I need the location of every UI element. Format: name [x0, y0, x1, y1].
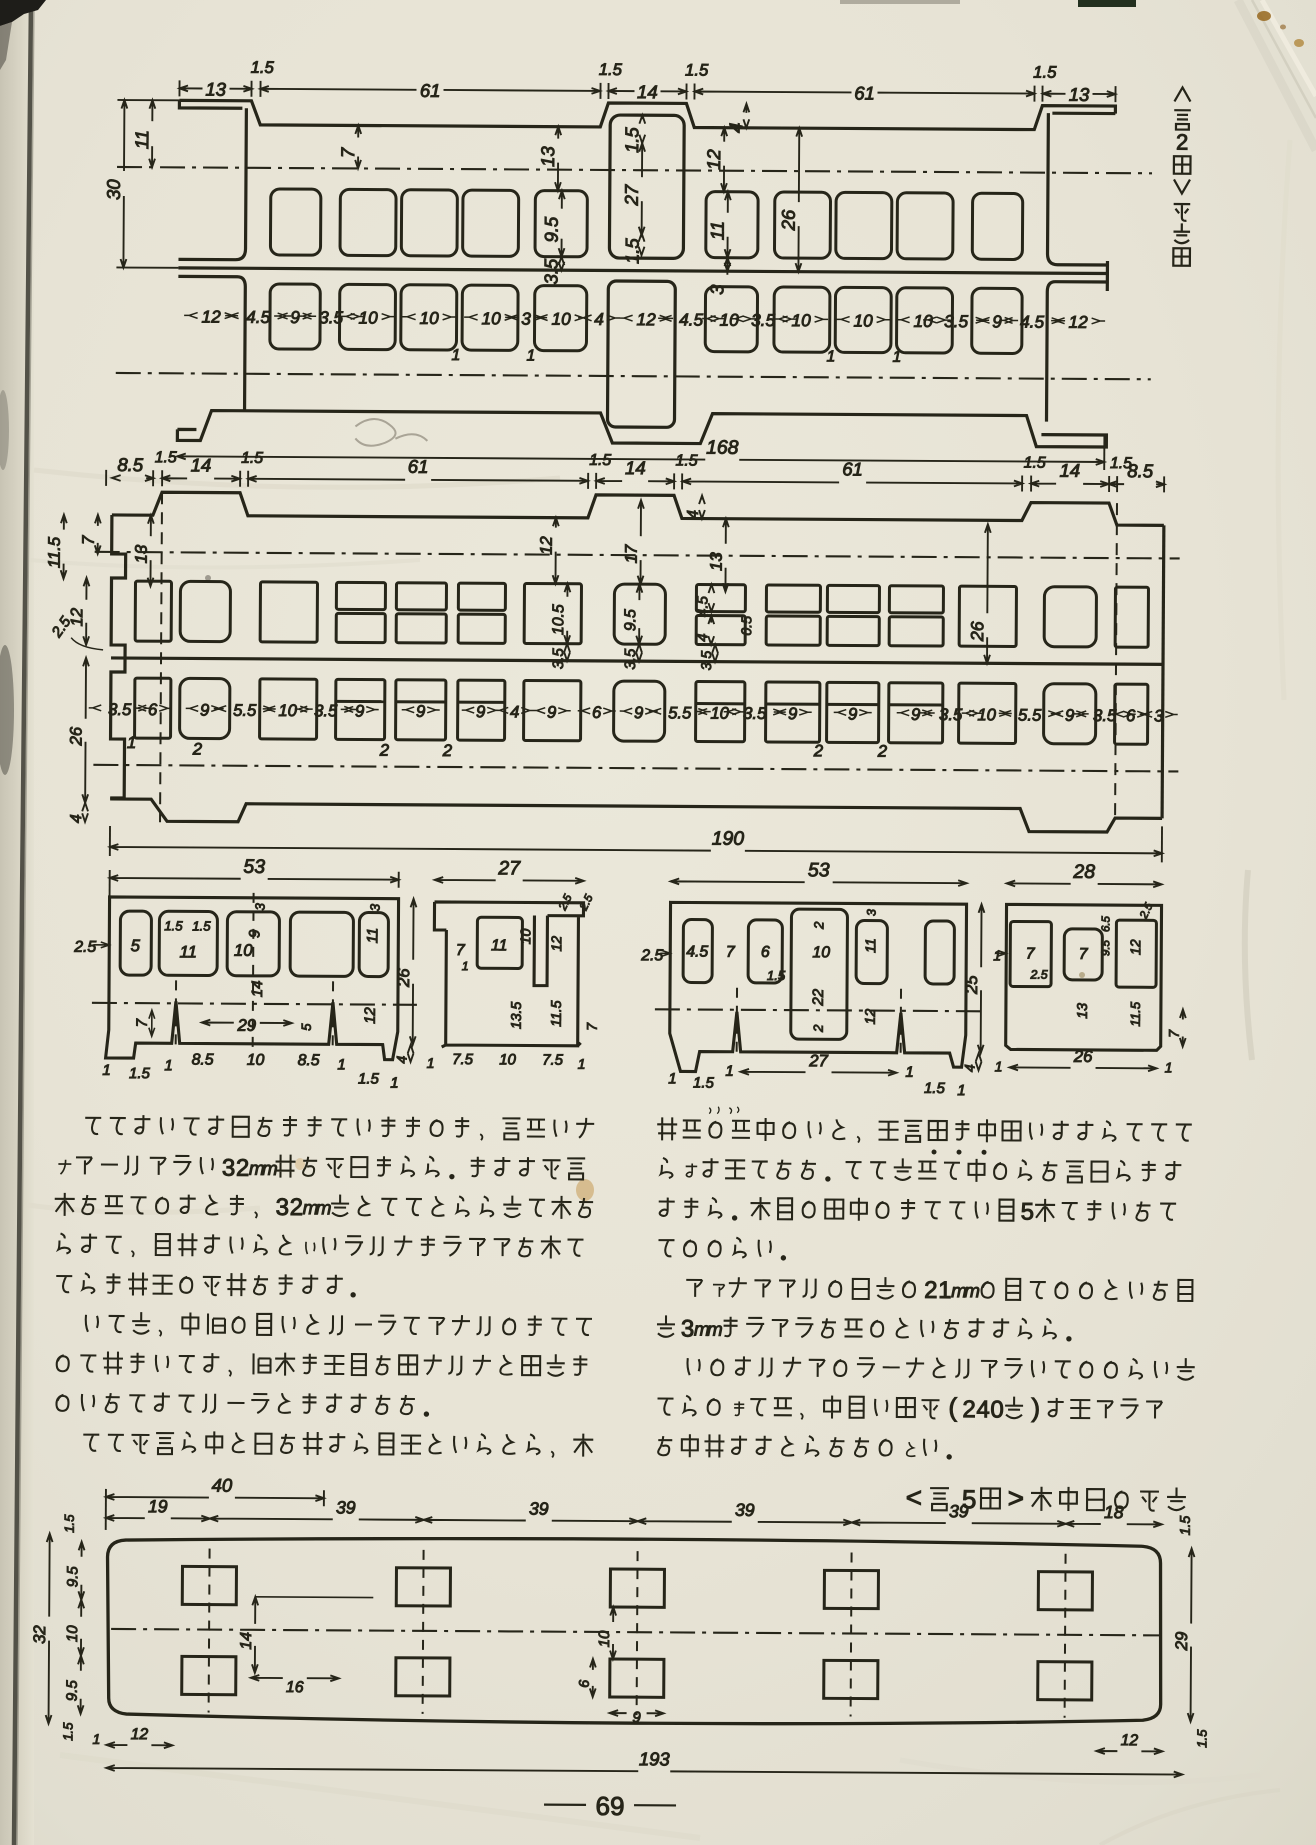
svg-text:29: 29 [236, 1016, 256, 1035]
svg-text:2: 2 [811, 1024, 826, 1033]
svg-text:10: 10 [419, 308, 439, 328]
svg-text:25: 25 [962, 975, 981, 995]
svg-text:10: 10 [481, 308, 501, 328]
svg-text:3.5: 3.5 [743, 704, 767, 723]
svg-text:3.5: 3.5 [622, 648, 639, 670]
svg-text:7: 7 [1079, 946, 1089, 963]
svg-text:4.5: 4.5 [686, 943, 708, 960]
svg-text:m: m [316, 1198, 332, 1219]
svg-text:12: 12 [131, 1726, 149, 1743]
svg-text:4: 4 [510, 702, 519, 721]
svg-text:6.5: 6.5 [1100, 915, 1112, 932]
svg-text:9.5: 9.5 [622, 609, 639, 631]
svg-text:1: 1 [995, 1058, 1003, 1074]
svg-text:3: 3 [1154, 706, 1164, 725]
svg-text:4.5: 4.5 [694, 595, 711, 617]
svg-text:1.5: 1.5 [155, 449, 177, 466]
svg-text:3: 3 [252, 902, 267, 910]
svg-text:3.5: 3.5 [319, 307, 343, 327]
svg-text:39: 39 [529, 1499, 549, 1519]
svg-text:12: 12 [548, 936, 564, 952]
svg-text:1: 1 [427, 1055, 435, 1071]
svg-text:13: 13 [132, 544, 151, 563]
svg-text:2: 2 [1176, 129, 1188, 154]
svg-text:1: 1 [826, 348, 835, 365]
svg-text:10: 10 [358, 307, 378, 327]
svg-text:<: < [906, 1482, 923, 1513]
svg-text:>: > [1008, 1482, 1025, 1513]
svg-text:27: 27 [497, 857, 521, 879]
svg-text:14: 14 [249, 980, 266, 997]
svg-text:9: 9 [632, 1709, 641, 1726]
svg-text:39: 39 [949, 1501, 969, 1521]
svg-text:4: 4 [962, 1064, 978, 1072]
svg-text:2: 2 [962, 1396, 976, 1423]
svg-text:61: 61 [842, 458, 863, 479]
svg-text:39: 39 [336, 1497, 356, 1517]
svg-text:7: 7 [726, 944, 736, 961]
svg-text:1.5: 1.5 [241, 450, 263, 467]
svg-text:1.5: 1.5 [60, 1722, 75, 1741]
svg-text:12: 12 [703, 149, 724, 170]
svg-text:4: 4 [394, 1056, 410, 1064]
svg-text:2: 2 [379, 741, 390, 760]
svg-text:8.5: 8.5 [117, 454, 144, 475]
svg-text:11.5: 11.5 [548, 1000, 564, 1027]
svg-text:11: 11 [491, 937, 508, 954]
svg-text:1: 1 [1165, 1059, 1173, 1075]
svg-text:1.5: 1.5 [693, 1075, 715, 1092]
svg-text:3.5: 3.5 [751, 310, 775, 330]
svg-text:11: 11 [131, 130, 152, 149]
svg-text:1.5: 1.5 [358, 1070, 380, 1087]
svg-text:14: 14 [1059, 460, 1080, 481]
svg-text:40: 40 [212, 1475, 233, 1496]
svg-text:22: 22 [810, 988, 827, 1006]
svg-text:16: 16 [286, 1679, 304, 1696]
svg-text:5.5: 5.5 [668, 703, 692, 722]
svg-text:9: 9 [788, 704, 797, 723]
svg-text:1: 1 [127, 733, 136, 752]
svg-text:32: 32 [30, 1624, 49, 1643]
svg-text:9: 9 [290, 307, 300, 327]
svg-text:1: 1 [526, 347, 535, 364]
svg-text:1: 1 [938, 1277, 952, 1304]
svg-text:1: 1 [578, 1056, 586, 1072]
svg-text:6: 6 [576, 1680, 592, 1688]
svg-text:1.5: 1.5 [589, 452, 611, 469]
svg-text:m: m [262, 1159, 278, 1180]
svg-text:1.5: 1.5 [1110, 455, 1132, 472]
svg-text:9: 9 [1065, 706, 1074, 725]
svg-text:3.5: 3.5 [314, 701, 338, 720]
svg-text:7: 7 [456, 942, 466, 959]
svg-text:39: 39 [735, 1500, 755, 1520]
svg-text:11: 11 [180, 942, 197, 961]
svg-text:13: 13 [1074, 1003, 1090, 1019]
svg-text:7: 7 [584, 1022, 600, 1031]
svg-text:69: 69 [595, 1791, 624, 1821]
svg-text:4: 4 [725, 123, 746, 133]
svg-text:53: 53 [808, 859, 830, 881]
svg-text:5: 5 [1021, 1199, 1035, 1226]
svg-text:4.5: 4.5 [246, 307, 270, 327]
svg-text:9: 9 [911, 705, 920, 724]
svg-text:7: 7 [1026, 946, 1036, 963]
svg-text:5.5: 5.5 [233, 701, 257, 720]
svg-text:2.5: 2.5 [1030, 968, 1048, 982]
svg-text:3.5: 3.5 [108, 700, 132, 719]
svg-text:1.5: 1.5 [1194, 1729, 1209, 1748]
svg-text:12: 12 [1121, 1732, 1139, 1749]
svg-text:1.5: 1.5 [767, 968, 786, 983]
svg-text:10.5: 10.5 [550, 604, 567, 635]
svg-text:4: 4 [976, 1396, 990, 1423]
svg-text:11: 11 [862, 938, 878, 953]
svg-text:3.5: 3.5 [550, 648, 567, 670]
svg-text:12: 12 [537, 536, 556, 555]
svg-text:193: 193 [639, 1748, 671, 1769]
svg-text:(: ( [948, 1392, 957, 1422]
svg-text:19: 19 [148, 1496, 168, 1516]
svg-text:28: 28 [1072, 861, 1095, 883]
svg-text:18: 18 [1104, 1502, 1124, 1522]
svg-text:3.5: 3.5 [939, 705, 963, 724]
svg-text:12: 12 [362, 1006, 379, 1023]
svg-text:3: 3 [521, 308, 531, 328]
svg-text:2: 2 [924, 1277, 938, 1304]
svg-text:4: 4 [594, 309, 604, 329]
svg-text:10: 10 [791, 310, 811, 330]
svg-text:7: 7 [134, 1018, 151, 1027]
svg-text:6: 6 [761, 944, 770, 961]
svg-text:0.5: 0.5 [738, 616, 754, 636]
svg-text:14: 14 [191, 454, 212, 475]
svg-text:1: 1 [102, 1062, 110, 1079]
svg-text:7: 7 [337, 147, 358, 158]
svg-text:10: 10 [64, 1625, 81, 1642]
svg-text:1.5: 1.5 [621, 126, 642, 153]
svg-text:1: 1 [337, 1056, 345, 1073]
svg-text:3.5: 3.5 [540, 258, 561, 285]
svg-text:2: 2 [442, 741, 453, 760]
svg-text:9.5: 9.5 [64, 1566, 81, 1588]
svg-text:1: 1 [92, 1731, 100, 1747]
svg-text:2: 2 [290, 1194, 304, 1221]
svg-text:4.5: 4.5 [679, 309, 703, 329]
svg-text:0: 0 [990, 1396, 1004, 1423]
svg-text:): ) [1031, 1393, 1040, 1423]
svg-text:10: 10 [499, 1051, 516, 1068]
svg-text:13: 13 [707, 552, 726, 571]
svg-text:27: 27 [808, 1051, 828, 1070]
svg-text:11.5: 11.5 [45, 536, 64, 568]
svg-text:13: 13 [537, 146, 558, 167]
svg-text:2: 2 [813, 741, 824, 760]
svg-text:14: 14 [238, 1632, 255, 1650]
svg-text:9: 9 [547, 703, 556, 722]
svg-text:10: 10 [596, 1630, 613, 1647]
svg-text:3: 3 [681, 1315, 695, 1342]
svg-text:26: 26 [967, 621, 987, 642]
svg-text:4.5: 4.5 [1020, 311, 1044, 331]
svg-text:5: 5 [131, 936, 141, 955]
svg-text:12: 12 [1127, 939, 1143, 955]
svg-text:m: m [964, 1281, 980, 1302]
svg-text:1: 1 [451, 347, 460, 364]
svg-text:29: 29 [1172, 1632, 1191, 1652]
svg-text:11: 11 [707, 221, 728, 240]
svg-text:61: 61 [854, 82, 875, 103]
svg-text:7.5: 7.5 [542, 1052, 564, 1069]
svg-text:1: 1 [905, 1064, 913, 1081]
svg-text:3: 3 [864, 909, 878, 916]
svg-text:1.5: 1.5 [685, 60, 709, 79]
svg-text:10: 10 [234, 941, 253, 960]
svg-text:7.5: 7.5 [452, 1051, 474, 1068]
svg-text:4: 4 [694, 633, 711, 641]
svg-text:6: 6 [148, 700, 158, 719]
svg-text:6: 6 [592, 703, 602, 722]
svg-text:10: 10 [977, 705, 996, 724]
svg-text:9.5: 9.5 [1100, 939, 1112, 956]
svg-text:61: 61 [408, 456, 429, 477]
svg-text:1.5: 1.5 [676, 452, 698, 469]
svg-text:1.5: 1.5 [599, 60, 623, 79]
svg-text:2: 2 [811, 921, 826, 930]
svg-text:1.5: 1.5 [62, 1514, 77, 1533]
svg-text:3.5: 3.5 [698, 651, 714, 671]
svg-text:9: 9 [848, 704, 857, 723]
svg-text:9: 9 [200, 700, 209, 719]
svg-text:1: 1 [725, 1063, 733, 1080]
svg-text:1.5: 1.5 [1033, 63, 1057, 82]
svg-text:14: 14 [625, 457, 646, 478]
svg-text:5: 5 [299, 1023, 314, 1031]
svg-text:2.5: 2.5 [73, 939, 96, 956]
svg-text:9: 9 [476, 702, 485, 721]
svg-text:10: 10 [517, 928, 533, 944]
svg-text:8.5: 8.5 [192, 1051, 214, 1068]
svg-text:1: 1 [390, 1075, 398, 1092]
svg-text:1.5: 1.5 [1177, 1516, 1193, 1536]
svg-text:26: 26 [394, 968, 413, 988]
svg-text:1.5: 1.5 [1024, 455, 1046, 472]
svg-text:10: 10 [812, 944, 830, 961]
svg-text:9: 9 [992, 311, 1002, 331]
svg-text:2: 2 [877, 742, 888, 761]
svg-text:1: 1 [957, 1082, 965, 1099]
svg-text:26: 26 [66, 726, 85, 746]
svg-text:27: 27 [621, 184, 642, 206]
svg-text:3.5: 3.5 [1093, 706, 1117, 725]
svg-text:9: 9 [246, 929, 263, 938]
svg-text:17: 17 [622, 544, 641, 563]
svg-text:1: 1 [164, 1057, 172, 1074]
svg-text:9: 9 [416, 702, 425, 721]
svg-text:2.5: 2.5 [640, 947, 663, 964]
svg-text:168: 168 [706, 437, 739, 459]
svg-text:3: 3 [276, 1194, 290, 1221]
svg-text:30: 30 [103, 179, 124, 200]
svg-text:2: 2 [192, 739, 203, 758]
svg-text:1.5: 1.5 [164, 918, 183, 933]
svg-text:53: 53 [243, 856, 265, 878]
svg-text:11: 11 [364, 928, 381, 944]
svg-text:61: 61 [420, 80, 441, 101]
svg-text:14: 14 [637, 81, 658, 102]
svg-text:1.5: 1.5 [621, 237, 642, 264]
svg-text:26: 26 [1073, 1047, 1093, 1066]
svg-text:1: 1 [668, 1070, 676, 1087]
svg-text:9.5: 9.5 [541, 216, 562, 243]
svg-text:5.5: 5.5 [1018, 705, 1042, 724]
svg-text:13: 13 [205, 79, 226, 100]
svg-text:12: 12 [636, 309, 656, 329]
svg-text:7: 7 [79, 535, 98, 545]
svg-text:2: 2 [236, 1155, 250, 1182]
svg-text:3: 3 [367, 903, 382, 911]
svg-text:10: 10 [853, 310, 873, 330]
svg-text:12: 12 [201, 306, 221, 326]
svg-text:1.5: 1.5 [924, 1080, 946, 1097]
svg-text:1.5: 1.5 [251, 58, 275, 77]
svg-text:10: 10 [551, 309, 571, 329]
svg-text:1: 1 [892, 349, 901, 366]
svg-text:12: 12 [1068, 312, 1088, 332]
svg-text:10: 10 [710, 704, 729, 723]
svg-text:9: 9 [634, 703, 643, 722]
svg-text:3.5: 3.5 [944, 311, 968, 331]
svg-text:4: 4 [685, 510, 702, 519]
svg-text:1: 1 [462, 959, 469, 973]
svg-text:26: 26 [778, 209, 799, 231]
svg-text:9.5: 9.5 [64, 1680, 81, 1702]
svg-text:11.5: 11.5 [1128, 1001, 1143, 1026]
svg-text:190: 190 [712, 828, 745, 850]
svg-text:4: 4 [68, 814, 85, 823]
svg-text:m: m [707, 1320, 723, 1341]
svg-text:13.5: 13.5 [508, 1002, 524, 1030]
svg-text:12: 12 [862, 1009, 878, 1025]
svg-text:10: 10 [278, 701, 297, 720]
svg-text:8.5: 8.5 [298, 1052, 320, 1069]
svg-text:9: 9 [355, 701, 364, 720]
svg-text:3: 3 [222, 1155, 236, 1182]
svg-text:1.5: 1.5 [192, 918, 211, 933]
svg-text:13: 13 [1069, 84, 1090, 105]
svg-text:3: 3 [706, 284, 727, 295]
svg-text:7: 7 [1166, 1029, 1182, 1038]
svg-text:10: 10 [247, 1052, 265, 1069]
svg-text:1.5: 1.5 [129, 1065, 151, 1082]
